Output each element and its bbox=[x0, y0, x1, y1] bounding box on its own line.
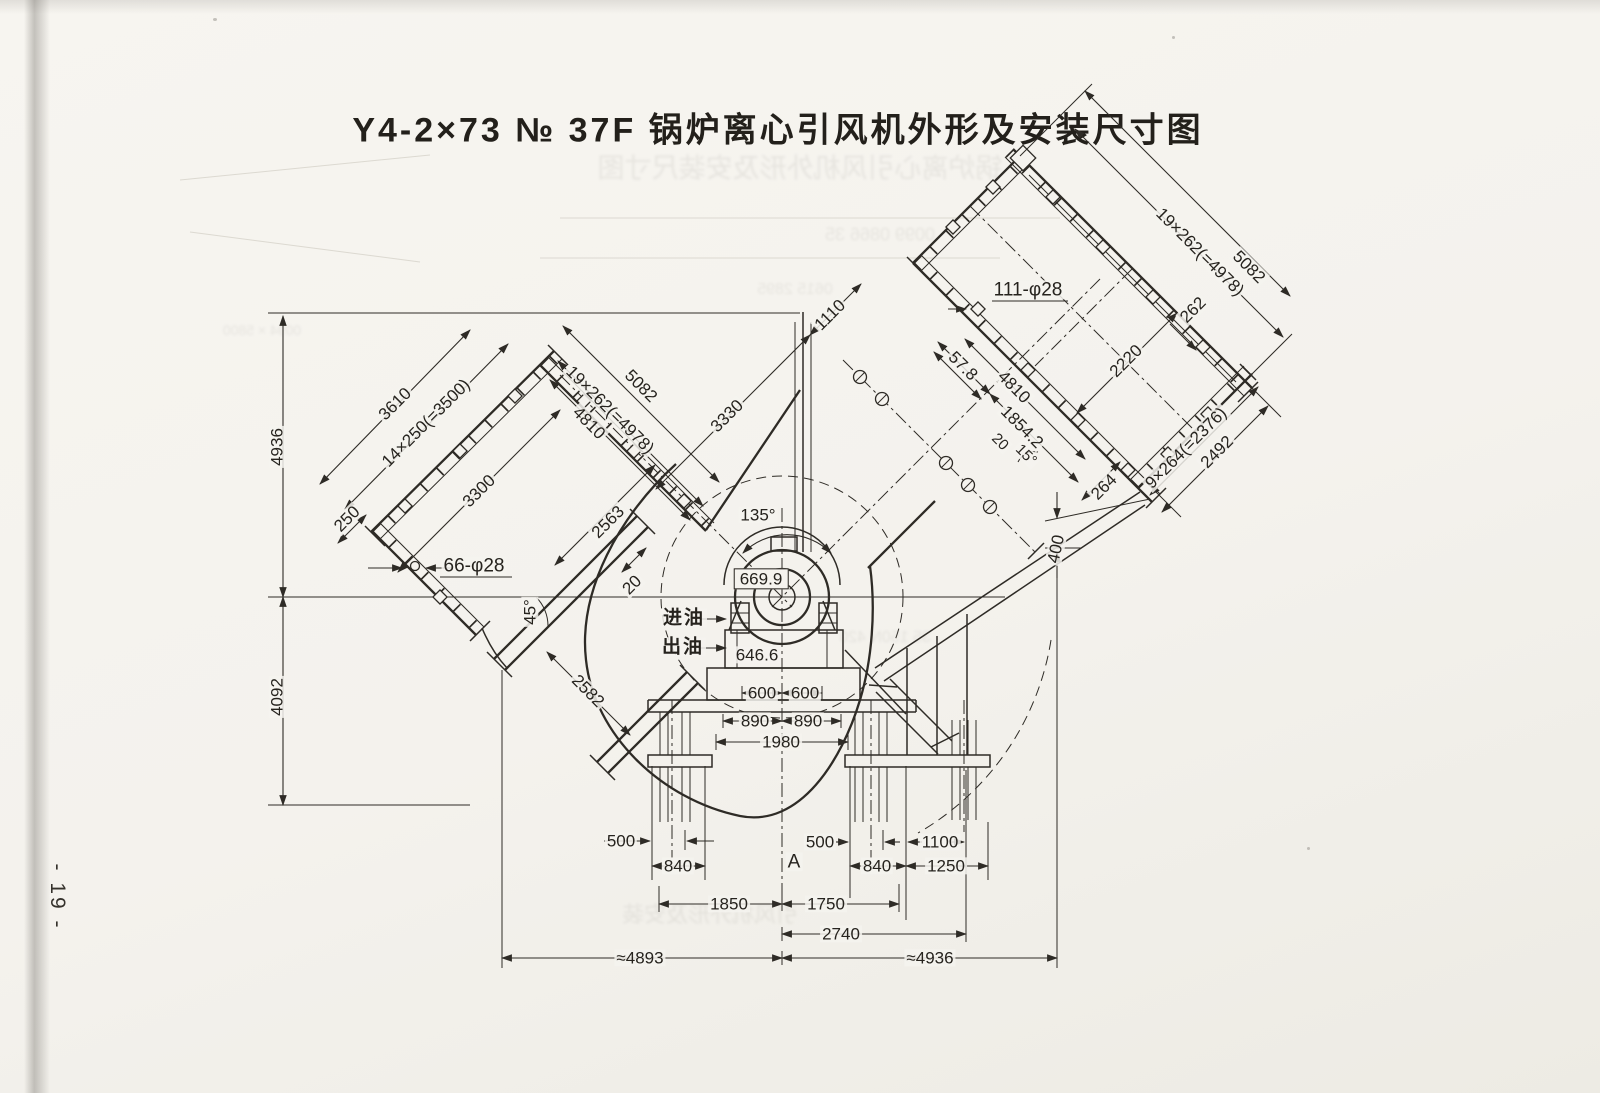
dim-label-d1110: 1110 bbox=[810, 295, 850, 335]
dim-label-d890b: 890 bbox=[792, 712, 824, 729]
dim-label-d3330: 3330 bbox=[706, 395, 748, 437]
dim-label-d1100: 1100 bbox=[920, 833, 961, 850]
scanned-drawing-page: Y4-2×73 № 37F 锅炉离心引风机外形及安装尺寸图 - 19 - 锅炉离… bbox=[0, 0, 1600, 1093]
dim-label-d262: 262 bbox=[1175, 292, 1210, 327]
dim-label-oil-in: 进油 bbox=[661, 608, 707, 627]
dim-label-d4810R: 4810 bbox=[993, 366, 1035, 408]
dim-label-d4936b: ≈4936 bbox=[904, 949, 955, 966]
dim-label-d2220: 2220 bbox=[1105, 340, 1147, 382]
dim-label-d1850: 1850 bbox=[708, 895, 750, 912]
dim-label-oil-out: 出油 bbox=[660, 637, 706, 656]
dim-label-d600a: 600 bbox=[746, 684, 778, 701]
dim-label-d500b: 500 bbox=[804, 833, 836, 850]
dim-label-ptA: A bbox=[786, 852, 803, 871]
dim-label-d840b: 840 bbox=[861, 857, 893, 874]
dim-label-d890a: 890 bbox=[739, 712, 771, 729]
bleed-through-text: 0094 × 5800 bbox=[223, 322, 301, 338]
dim-label-d2740: 2740 bbox=[820, 925, 862, 942]
dim-label-d1250: 1250 bbox=[925, 857, 967, 874]
bleed-through-text: 35 150N 420 bbox=[839, 629, 931, 647]
dim-label-d2582: 2582 bbox=[567, 670, 609, 712]
dim-label-d14x250: 14×250(=3500) bbox=[377, 374, 474, 471]
dim-label-d2563: 2563 bbox=[587, 501, 629, 543]
dim-label-d646: 646.6 bbox=[734, 646, 781, 663]
dim-label-d3610: 3610 bbox=[374, 383, 416, 425]
dim-label-d66phi: 66-φ28 bbox=[442, 556, 507, 575]
dim-label-d4893: ≈4893 bbox=[614, 949, 665, 966]
dim-label-d840a: 840 bbox=[662, 857, 694, 874]
dim-label-d400: 400 bbox=[1044, 531, 1068, 566]
paper-speck bbox=[213, 18, 217, 21]
dim-label-d500a: 500 bbox=[605, 832, 637, 849]
dim-label-d111phi: 111-φ28 bbox=[992, 280, 1065, 299]
dim-label-d3300: 3300 bbox=[458, 470, 500, 512]
paper-speck bbox=[1172, 36, 1175, 39]
dim-label-d5082L: 5082 bbox=[620, 365, 662, 407]
bleed-through-text: 锅炉离心引风机外形及安装尺寸图 bbox=[598, 147, 1003, 186]
dim-label-d1750: 1750 bbox=[805, 895, 847, 912]
dim-label-d20L: 20 bbox=[618, 571, 646, 599]
dim-label-d250: 250 bbox=[329, 501, 364, 536]
dim-label-d600b: 600 bbox=[789, 684, 821, 701]
bleed-through-text: 0099 0866 35 bbox=[825, 225, 935, 246]
bleed-through-text: 0615 2895 bbox=[757, 281, 833, 299]
dim-label-v4936: 4936 bbox=[268, 426, 285, 468]
dim-label-d1980: 1980 bbox=[760, 733, 802, 750]
dim-label-d45: 45° bbox=[521, 597, 538, 627]
dim-label-d264: 264 bbox=[1086, 469, 1121, 504]
dim-label-d20R: 20 bbox=[987, 429, 1012, 454]
dim-label-d57: 57.8 bbox=[944, 347, 982, 385]
dim-label-v4092: 4092 bbox=[268, 676, 285, 718]
paper-speck bbox=[1307, 847, 1310, 850]
dim-label-d669: 669.9 bbox=[734, 568, 789, 589]
dim-label-d135: 135° bbox=[738, 506, 777, 523]
